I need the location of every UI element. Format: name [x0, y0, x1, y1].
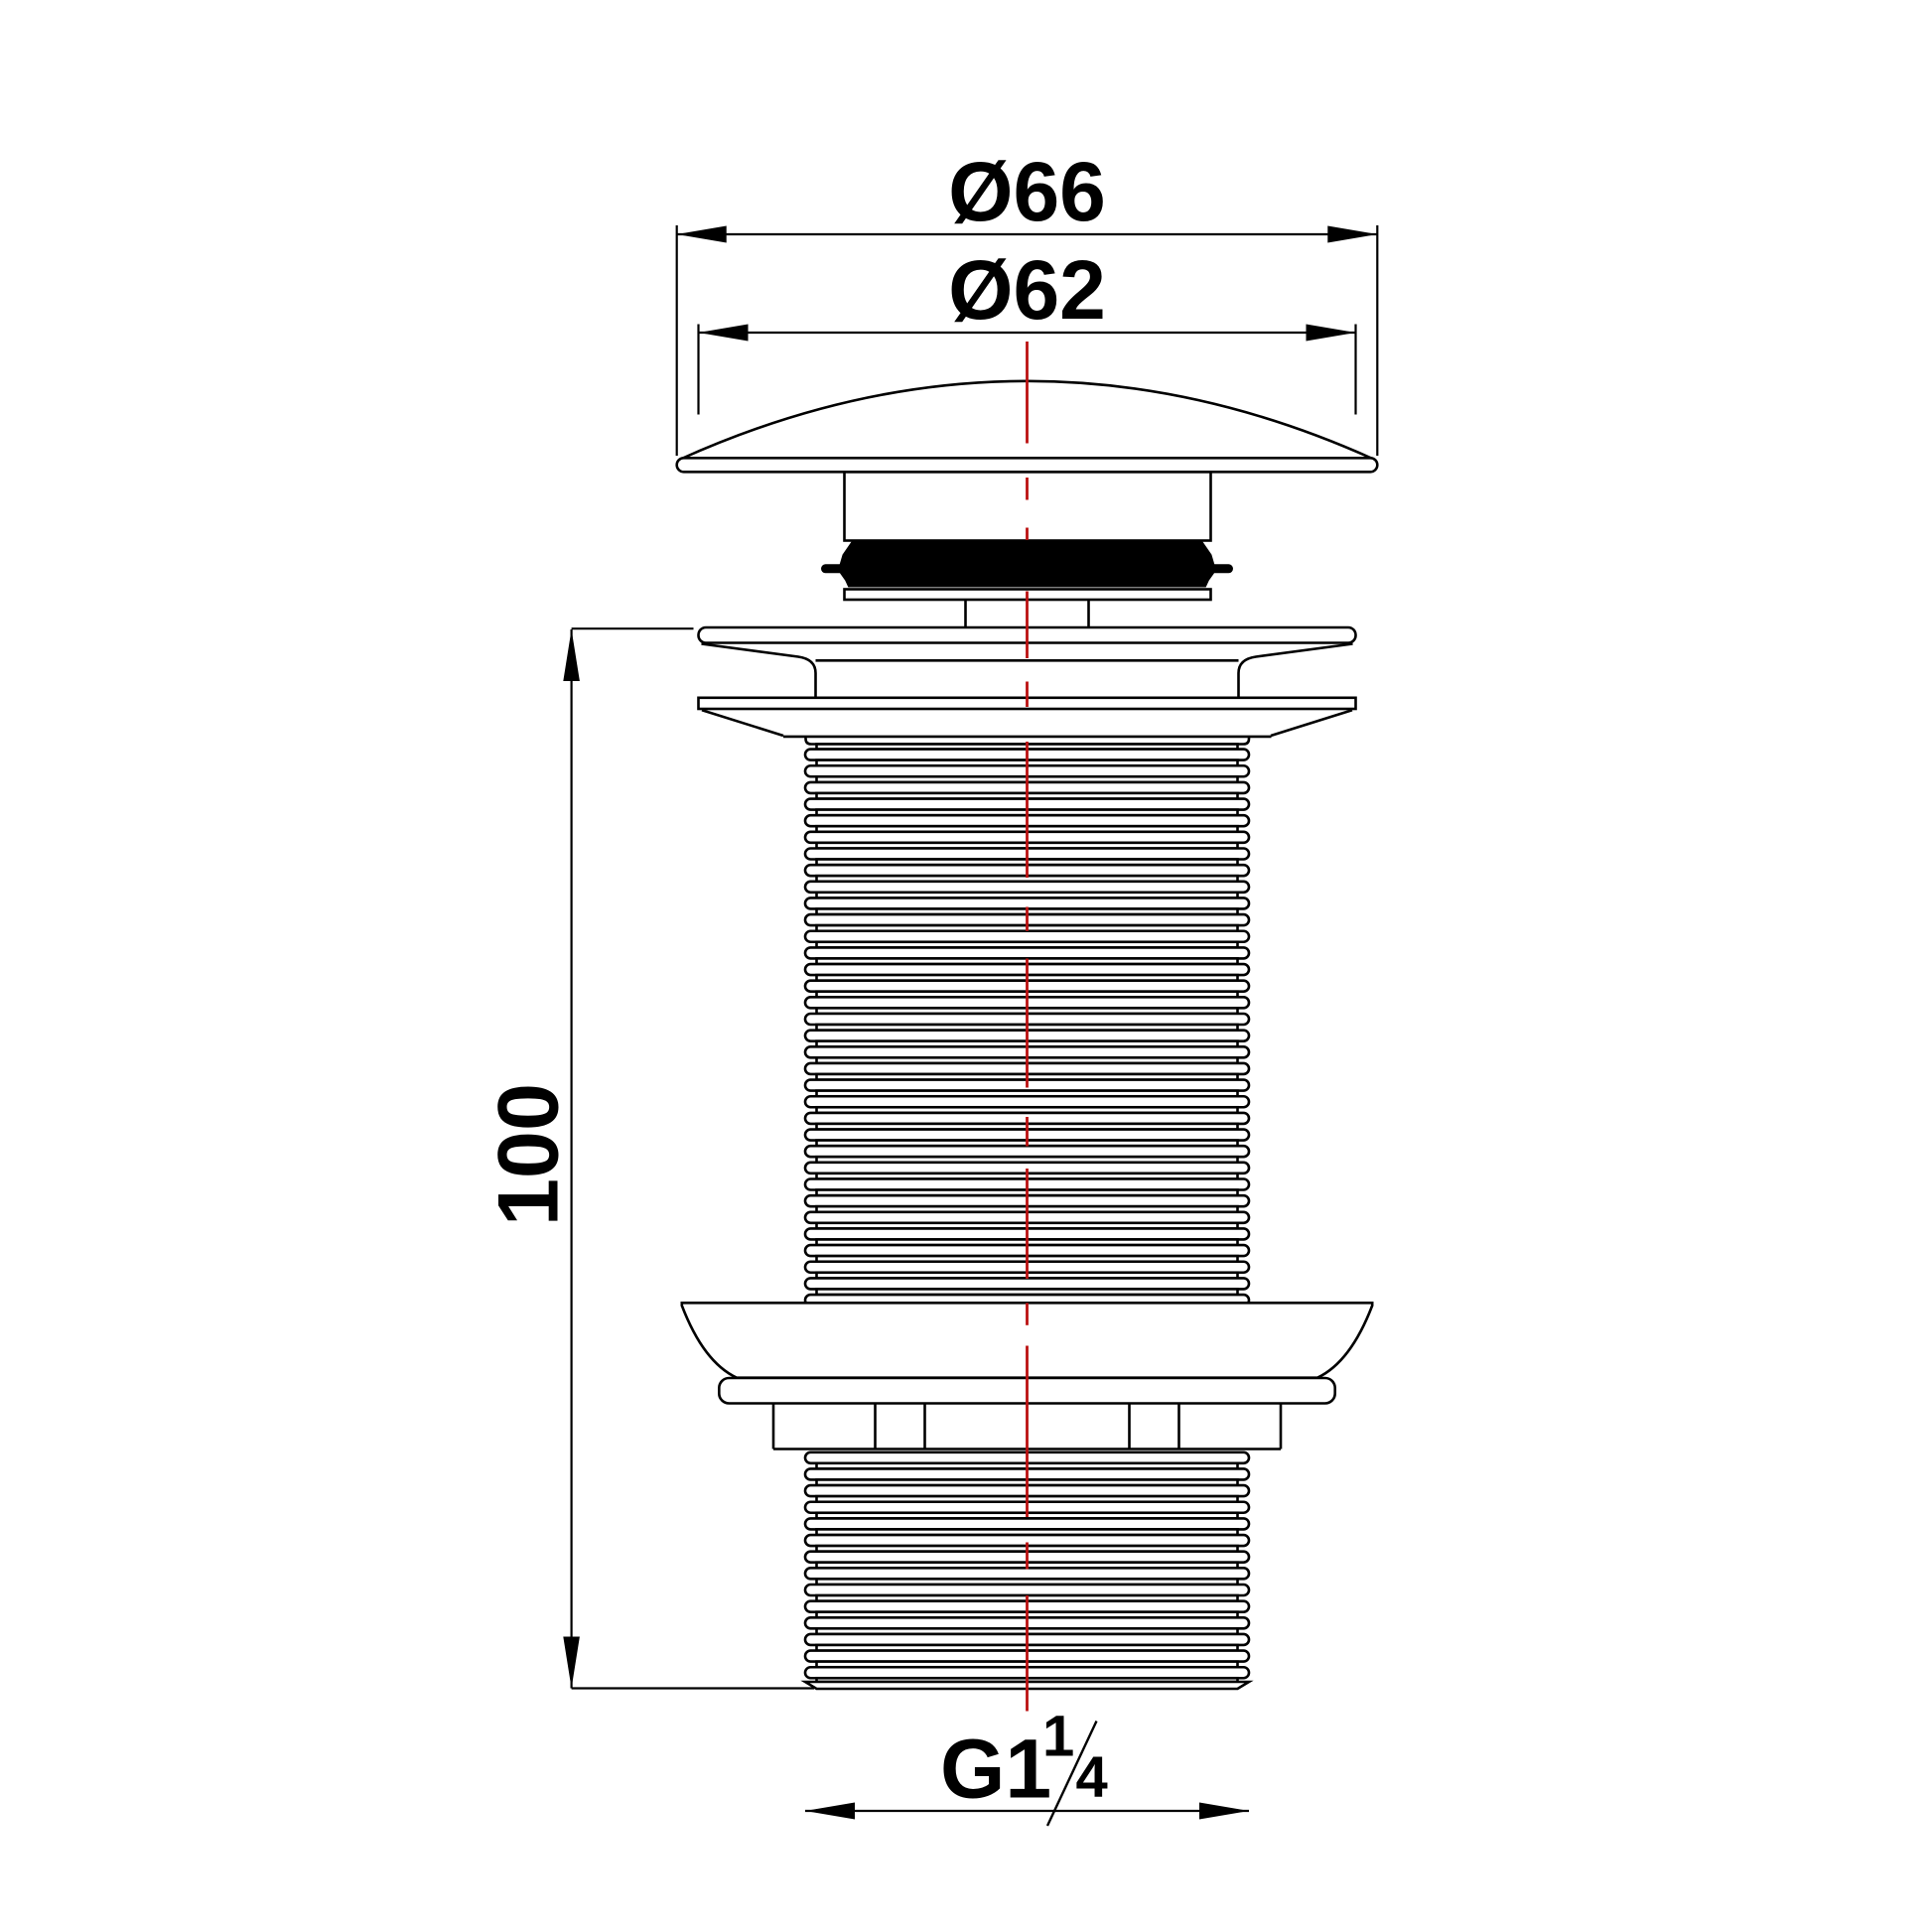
svg-text:Ø66: Ø66 [948, 145, 1106, 238]
svg-text:100: 100 [482, 1083, 577, 1226]
svg-text:Ø62: Ø62 [948, 243, 1106, 337]
svg-text:G1: G1 [940, 1723, 1051, 1816]
svg-text:1: 1 [1042, 1705, 1074, 1769]
